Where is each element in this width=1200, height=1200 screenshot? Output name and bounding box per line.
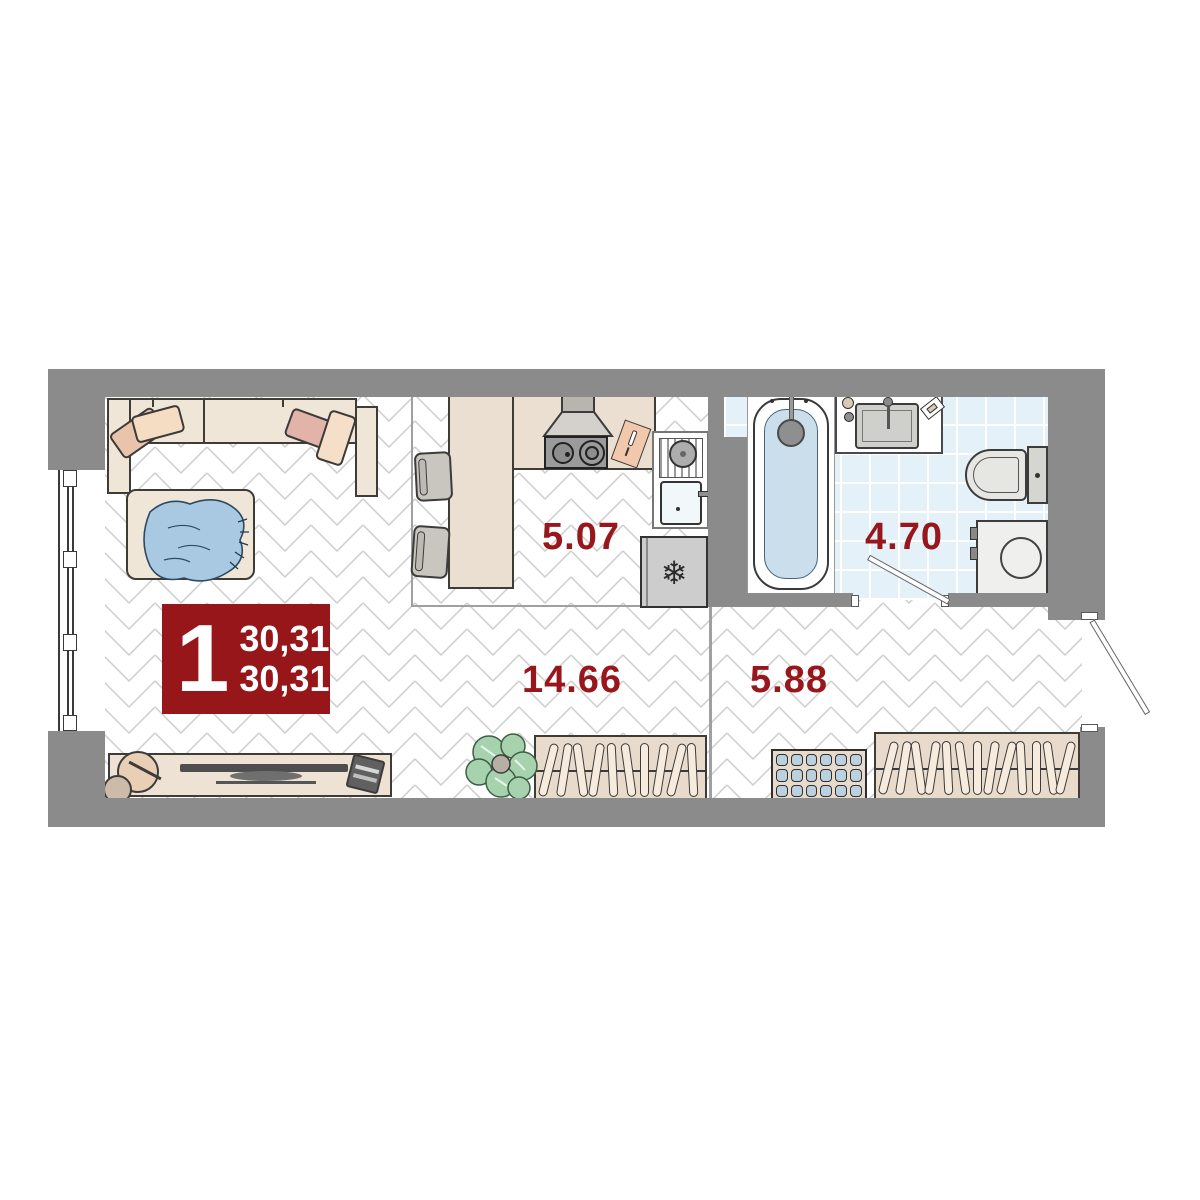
window-mullion — [63, 634, 77, 651]
wall-dot — [804, 399, 808, 403]
shoe-cell — [776, 754, 788, 766]
hanger — [607, 743, 619, 797]
plant — [455, 726, 547, 808]
shoe-cell — [776, 785, 788, 797]
shoe-cell — [820, 785, 832, 797]
shoe-cell — [776, 769, 788, 781]
shoe-cell — [791, 769, 803, 781]
hanger — [588, 743, 605, 798]
shoe-cell — [835, 785, 847, 797]
washer-knob — [970, 527, 978, 540]
hanger — [666, 743, 688, 798]
wardrobe-room — [534, 735, 707, 805]
pot — [669, 440, 697, 468]
hangers — [544, 743, 697, 797]
stove — [544, 436, 608, 469]
shoe-cell — [820, 769, 832, 781]
soap — [844, 412, 854, 422]
room-label-hallway: 5.88 — [724, 659, 854, 702]
shoe-cell — [835, 769, 847, 781]
sofa-blanket — [134, 492, 258, 588]
vanity — [835, 393, 943, 454]
hanger — [556, 743, 573, 798]
wall-bath-bottom-right — [948, 593, 1060, 607]
hallway-divider-line — [709, 607, 712, 799]
shoe-cell — [806, 785, 818, 797]
room-label-bathroom: 4.70 — [844, 516, 964, 559]
shoe-cell — [850, 754, 862, 766]
hanger — [973, 741, 982, 795]
hanger — [640, 743, 649, 797]
entry-door-jamb — [1081, 724, 1098, 732]
window-frame-line-2 — [72, 470, 74, 731]
hanger — [620, 743, 636, 798]
sofa-cushion-tick — [152, 398, 154, 407]
drain — [676, 507, 680, 511]
cooker-hood — [540, 393, 616, 438]
wall-right-upper — [1048, 369, 1105, 620]
sofa-cushion-tick — [282, 398, 284, 407]
area-badge: 1 30,31 30,31 — [162, 604, 330, 714]
kitchen-chair — [410, 525, 451, 579]
snowflake-icon: ❄ — [642, 554, 706, 592]
toilet-tank — [1027, 446, 1048, 504]
hanger — [942, 741, 954, 795]
tv-base — [216, 781, 316, 784]
shoe-cell — [820, 754, 832, 766]
window-frame-line-1 — [67, 470, 69, 731]
burner — [552, 442, 574, 464]
knife — [627, 430, 637, 447]
window-left — [48, 470, 105, 731]
washer-drum — [1000, 537, 1042, 579]
room-label-kitchen: 5.07 — [511, 516, 651, 559]
wall-right-lower — [1080, 727, 1105, 827]
kitchen-table — [448, 395, 514, 589]
hanger — [1015, 741, 1027, 795]
tv-lens — [230, 771, 302, 781]
hanger — [924, 741, 941, 796]
total-area: 30,31 — [239, 619, 329, 659]
shoe-cell — [806, 754, 818, 766]
shoe-cabinet — [771, 749, 867, 802]
shoe-cell — [850, 785, 862, 797]
hanger — [572, 743, 588, 798]
wall-top — [48, 369, 1105, 397]
soap — [842, 397, 854, 409]
sink-basin — [660, 481, 702, 525]
kitchen-chair — [414, 451, 454, 502]
washing-machine — [976, 520, 1048, 595]
shoe-cell — [791, 785, 803, 797]
toilet-bowl — [965, 449, 1027, 501]
washer-knob — [970, 547, 978, 560]
burner — [579, 440, 605, 466]
bathroom-door-jamb — [851, 595, 859, 607]
room-label-living: 14.66 — [487, 659, 657, 702]
entry-door-jamb — [1081, 612, 1098, 620]
wall-kitchen-bath — [708, 369, 724, 607]
hanger — [954, 741, 970, 796]
window-mullion — [63, 551, 77, 568]
shoe-cell — [791, 754, 803, 766]
hanger — [910, 741, 926, 796]
apartment-floorplan: ❄ — [0, 0, 1200, 1200]
kitchen-sink-unit — [652, 431, 709, 529]
window-mullion — [63, 715, 77, 731]
shoe-cell — [850, 769, 862, 781]
shoe-cell — [835, 754, 847, 766]
bathtub-faucet — [777, 419, 805, 447]
wall-bottom — [48, 798, 1105, 827]
rooms-count: 1 — [176, 618, 229, 700]
window-mullion — [63, 470, 77, 487]
wall-bath-duct — [724, 437, 747, 607]
hanger — [687, 743, 699, 797]
wall-left-upper — [48, 369, 105, 470]
sofa-cushion-divider — [203, 400, 205, 442]
entry-door-leaf — [1089, 619, 1150, 715]
wall-bath-bottom-left — [747, 593, 853, 607]
wall-dot — [770, 399, 774, 403]
sofa-right-armrest — [355, 406, 378, 497]
window-glass-line — [58, 470, 60, 731]
hanger — [1032, 741, 1041, 795]
hangers — [884, 740, 1070, 796]
living-area: 30,31 — [239, 659, 329, 699]
wardrobe-hallway — [874, 732, 1080, 804]
soap-dish — [920, 396, 945, 420]
shoe-cell — [806, 769, 818, 781]
